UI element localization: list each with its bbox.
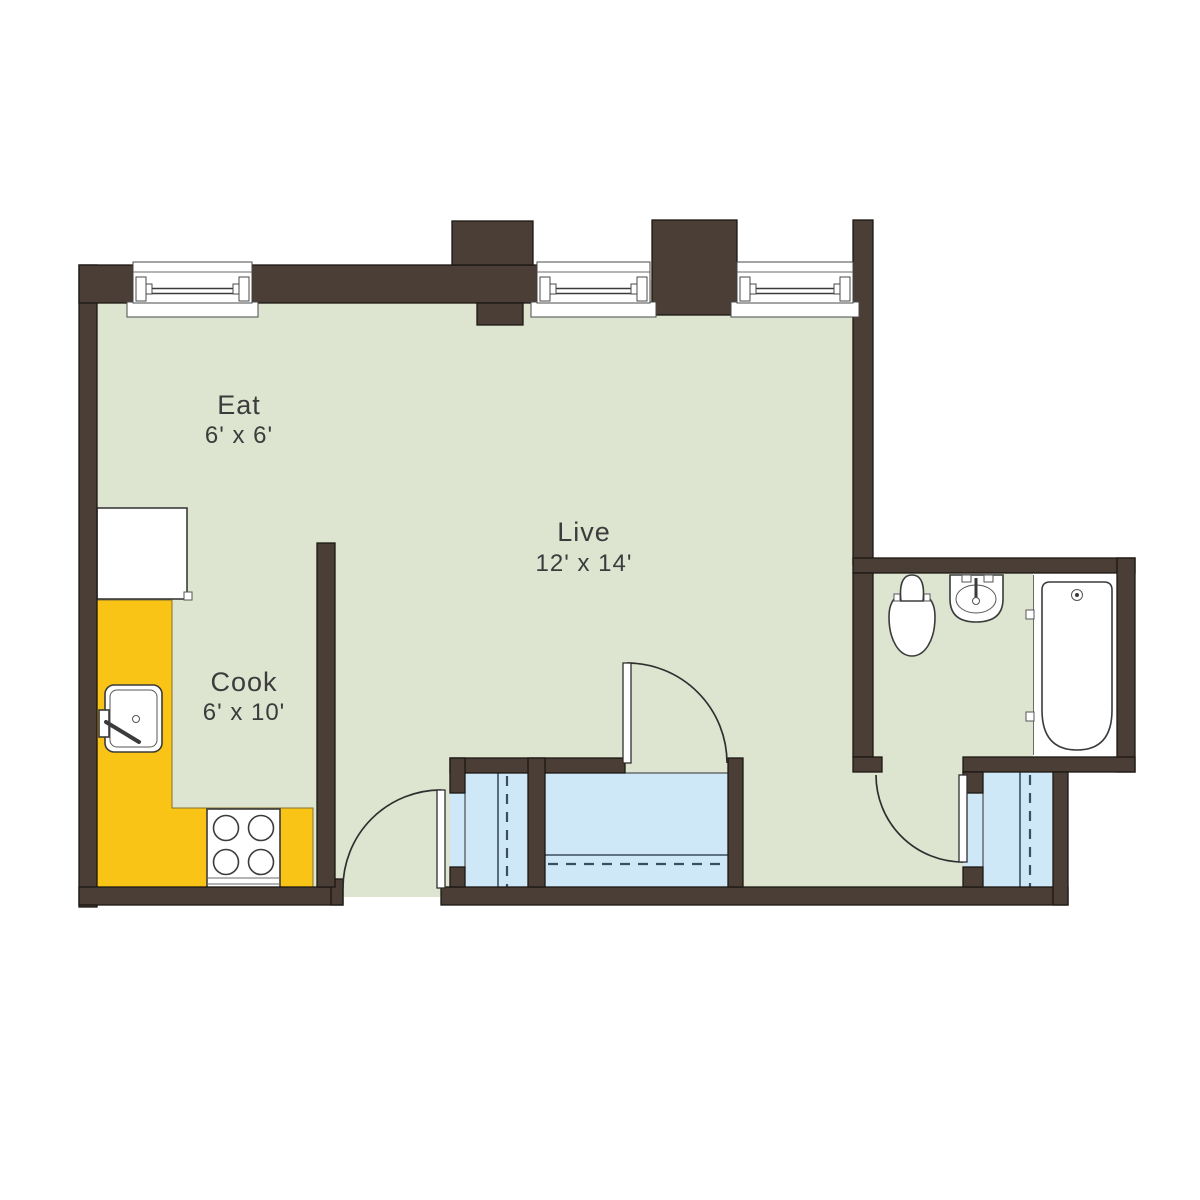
eat-room-label: Eat (217, 390, 261, 420)
bathroom-sink-icon (950, 575, 1003, 622)
stove-icon (207, 809, 280, 888)
live-room-label: Live (557, 517, 611, 547)
eat-room-dims: 6' x 6' (205, 422, 273, 449)
window-icon (531, 262, 656, 317)
window-icon (127, 262, 258, 317)
kitchen-sink-icon (99, 685, 162, 752)
floor-plan: Eat 6' x 6' Live 12' x 14' Cook 6' x 10' (0, 0, 1200, 1200)
cook-room-dims: 6' x 10' (203, 699, 286, 726)
floor-plan-canvas: Eat 6' x 6' Live 12' x 14' Cook 6' x 10' (0, 0, 1200, 1200)
living-closet (545, 773, 728, 887)
window-icon (731, 262, 859, 317)
refrigerator-icon (97, 508, 192, 600)
bathtub-icon (1026, 573, 1117, 757)
cook-room-label: Cook (210, 667, 277, 697)
live-room-dims: 12' x 14' (536, 550, 633, 577)
